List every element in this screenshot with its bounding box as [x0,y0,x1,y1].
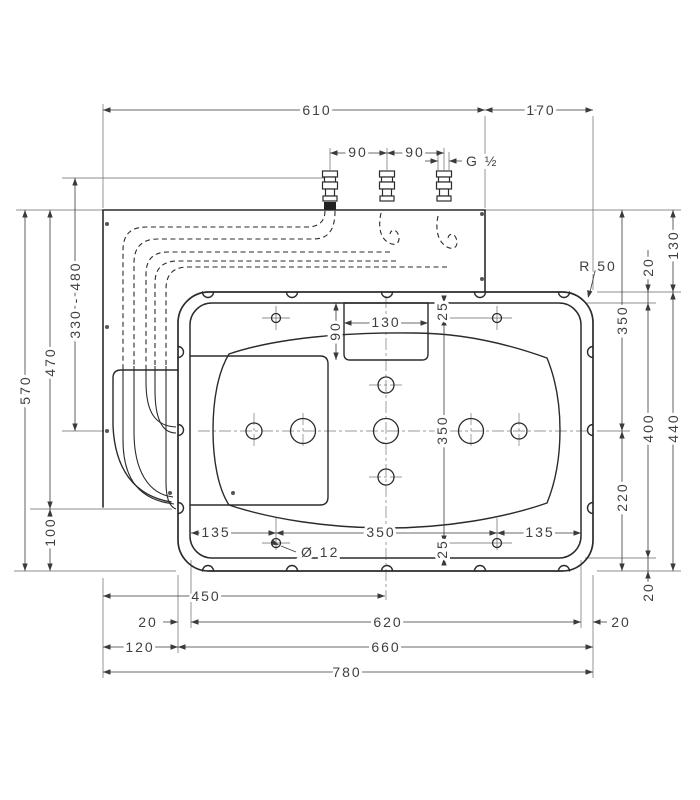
mounting-frame-outline [190,303,581,558]
dim-edge-gap-top-label: 20 [640,257,656,277]
dim-height-to-outlet-label: 470 [42,347,58,376]
dim-side-width-label: 170 [526,102,555,118]
dim-left-to-center-label: 450 [191,588,220,604]
dim-frame-height-label: 400 [640,413,656,442]
installation-drawing: 610 170 90 90 G ½ 570 470 330 - 480 100 … [0,0,700,800]
dim-edge-gap-bottom-label: 20 [640,582,656,602]
dim-port-gap-1-label: 90 [348,144,368,160]
dim-hole-span-h-label: 350 [366,524,395,540]
dim-plate-height-label: 130 [665,230,681,259]
hose-routing-solid [123,366,176,509]
dim-gap-right-label: 20 [611,614,631,630]
dim-gap-left-label: 20 [138,614,158,630]
dim-cutout-width-label: 130 [371,314,400,330]
diameter-leader [281,546,296,552]
dim-hole-offset-bottom-label: 25 [434,539,450,559]
center-lines [198,296,590,600]
installation-drawing-page: 610 170 90 90 G ½ 570 470 330 - 480 100 … [0,0,700,800]
hose-routing-dashed [123,211,457,366]
thread-size-label: G ½ [466,153,498,169]
screw-holes [272,314,502,548]
dim-port-gap-2-label: 90 [405,144,425,160]
dim-plate-width-label: 610 [302,102,331,118]
fitting-base-plug [324,202,336,210]
dim-total-height-label: 570 [17,375,33,404]
faceplate-outline [213,333,560,528]
dimension-lines [25,110,673,672]
supply-port-fitting-2 [380,171,395,201]
function-block-outline [190,356,328,505]
dim-hole-span-v-label: 350 [434,415,450,444]
dim-hose-range-label: 330 - 480 [67,261,83,338]
dim-hole-offset-top-label: 25 [434,301,450,321]
hole-diameter-label: Ø 12 [301,544,339,560]
dim-body-width-label: 660 [371,639,400,655]
dim-top-to-center-label: 350 [614,305,630,334]
dim-outlet-to-bottom-label: 100 [42,517,58,546]
dim-total-width-label: 780 [332,664,361,680]
supply-port-fitting-3 [437,171,452,201]
dim-center-to-bottom-label: 220 [614,482,630,511]
mounting-plate-outline [103,210,485,507]
plate-fixing-dots [105,212,484,495]
supply-port-fitting-1 [323,171,338,210]
dim-body-height-label: 440 [665,413,681,442]
dim-overhang-left-label: 120 [125,639,154,655]
dim-hole-inset-left-label: 135 [201,524,230,540]
dim-hole-inset-right-label: 135 [525,524,554,540]
corner-radius-label: R 50 [579,258,617,274]
dimension-arrows [22,107,675,674]
dim-frame-width-label: 620 [373,614,402,630]
dim-cutout-height-label: 90 [327,321,343,341]
